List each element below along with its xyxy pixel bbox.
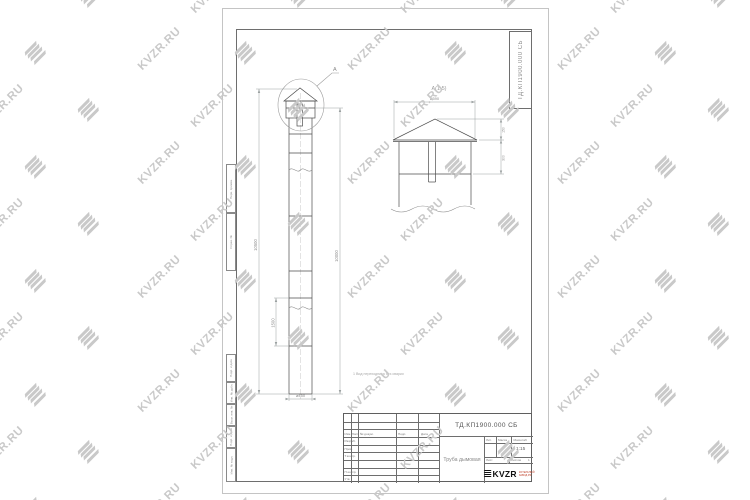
watermark-text: KVZR.RU [556, 481, 604, 500]
dim-cap-dia: ø390 [430, 96, 440, 101]
watermark-text: KVZR.RU [136, 253, 184, 301]
watermark-text: KVZR.RU [136, 481, 184, 500]
detail-callout [278, 73, 339, 131]
dim-roof-h: 150 [502, 127, 506, 133]
watermark-logo-icon [653, 382, 678, 407]
watermark-text: KVZR.RU [556, 139, 604, 187]
kvzr-stripes-icon [484, 469, 491, 479]
watermark-text: KVZR.RU [609, 310, 657, 358]
kvzr-logo-subtext: КОТЕЛЬНЫЙ ЗАВОД.РФ [519, 471, 535, 477]
watermark-logo-icon [23, 268, 48, 293]
watermark-logo-icon [653, 268, 678, 293]
dim-overall-left: 10500 [253, 239, 258, 251]
watermark-logo-icon [443, 496, 468, 500]
dimension-arrows-detail [394, 101, 502, 174]
tb-row-utv: Утв. [345, 477, 351, 481]
tb-logo-cell: KVZR КОТЕЛЬНЫЙ ЗАВОД.РФ [485, 463, 533, 483]
watermark-logo-icon [76, 0, 101, 8]
watermark-text: KVZR.RU [0, 0, 26, 16]
tb-col-list: Лист [352, 432, 359, 436]
dim-base: ø450 [296, 393, 306, 398]
watermark-logo-icon [76, 325, 101, 350]
watermark-logo-icon [706, 325, 731, 350]
watermark-logo-icon [76, 211, 101, 236]
kvzr-sub-line2: ЗАВОД.РФ [519, 474, 535, 477]
detail-label: А(1:5) [432, 86, 447, 92]
watermark-logo-icon [496, 0, 521, 8]
watermark-logo-icon [653, 40, 678, 65]
break-line [391, 206, 475, 212]
dim-overall-right: 10000 [334, 250, 339, 262]
drawing-sheet: Перв. примен. Справ. № Подп. и дата Инв.… [222, 8, 549, 494]
watermark-text: KVZR.RU [556, 25, 604, 73]
title-block: Изм. Лист № докум. Подп. Дата Разраб. Пр… [343, 413, 532, 482]
tb-row-nkontr: Н.контр. [345, 470, 357, 474]
dimension-lines-main [256, 89, 343, 401]
watermark-logo-icon [23, 382, 48, 407]
watermark-logo-icon [706, 0, 731, 8]
view-label: А [333, 67, 337, 73]
tb-col-data: Дата [421, 432, 428, 436]
kvzr-logo-text: KVZR [493, 469, 517, 479]
tb-mass-header: Масса [498, 438, 507, 442]
page: Перв. примен. Справ. № Подп. и дата Инв.… [0, 0, 750, 500]
tb-sheets-header: Листов [511, 458, 521, 462]
tb-scale-header: Масштаб [514, 438, 527, 442]
watermark-text: KVZR.RU [609, 82, 657, 130]
chimney-main-view [284, 88, 317, 399]
watermark-logo-icon [706, 211, 731, 236]
tb-col-podp: Подп. [398, 432, 406, 436]
watermark-logo-icon [23, 40, 48, 65]
dimension-lines-detail [394, 100, 504, 174]
watermark-text: KVZR.RU [0, 424, 26, 472]
watermark-text: KVZR.RU [136, 367, 184, 415]
watermark-logo-icon [653, 154, 678, 179]
tb-col-izm: Изм. [345, 432, 352, 436]
dim-body-h: 300 [502, 155, 506, 161]
watermark-logo-icon [23, 154, 48, 179]
tb-designation: ТД.КП1900.000 СБ [439, 414, 533, 437]
tb-lit-header: Лит. [486, 438, 492, 442]
watermark-text: KVZR.RU [136, 25, 184, 73]
watermark-text: KVZR.RU [609, 424, 657, 472]
tb-row-razrab: Разраб. [345, 439, 356, 443]
watermark-text: KVZR.RU [0, 196, 26, 244]
tb-sheets-value: 1 [528, 458, 530, 462]
watermark-logo-icon [653, 496, 678, 500]
dimension-arrows-main [258, 89, 341, 400]
watermark-logo-icon [76, 97, 101, 122]
tb-row-prov: Пров. [345, 447, 353, 451]
watermark-logo-icon [706, 97, 731, 122]
tb-row-tkontr: Т.контр. [345, 454, 356, 458]
watermark-text: KVZR.RU [136, 139, 184, 187]
watermark-logo-icon [286, 0, 311, 8]
watermark-text: KVZR.RU [609, 196, 657, 244]
tb-scale-value: 1:15 [516, 447, 525, 452]
watermark-text: KVZR.RU [0, 310, 26, 358]
detail-view [391, 119, 477, 212]
watermark-text: KVZR.RU [609, 0, 657, 16]
watermark-text: KVZR.RU [556, 253, 604, 301]
watermark-logo-icon [76, 439, 101, 464]
watermark-logo-icon [233, 496, 258, 500]
watermark-logo-icon [706, 439, 731, 464]
dim-segment: 1500 [271, 318, 276, 328]
tb-part-name: Труба дымовая [439, 437, 484, 483]
watermark-logo-icon [23, 496, 48, 500]
watermark-text: KVZR.RU [556, 367, 604, 415]
watermark-text: KVZR.RU [0, 82, 26, 130]
tb-col-dokum: № докум. [360, 432, 374, 436]
drawing-note: 1 Вид переходника без сварки [353, 372, 404, 376]
tb-sheet-header: Лист [486, 458, 493, 462]
break-line [289, 307, 312, 309]
